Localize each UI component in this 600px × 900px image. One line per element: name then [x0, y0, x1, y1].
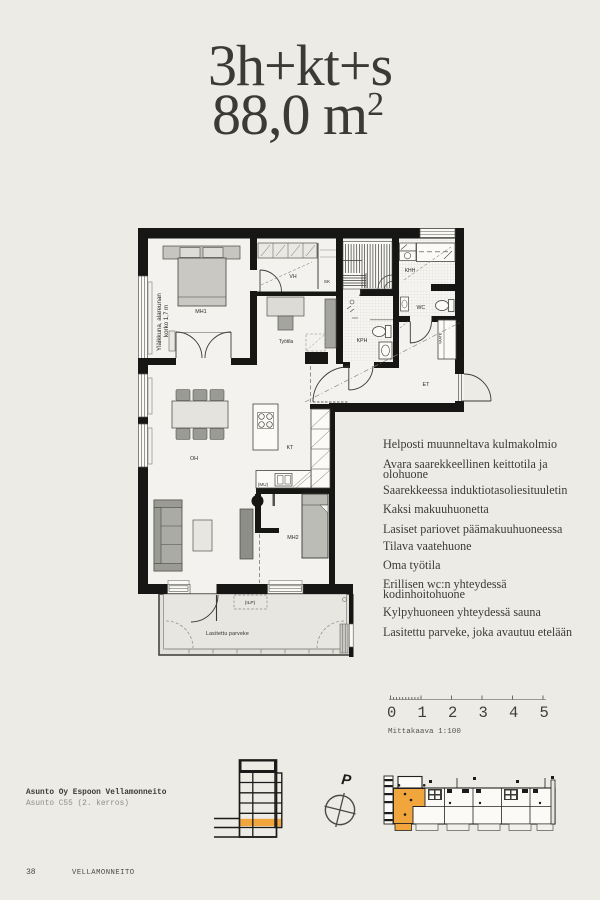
- svg-text:5: 5: [540, 704, 549, 722]
- svg-text:P: P: [341, 772, 353, 789]
- svg-text:kodinhoitohuone: kodinhoitohuone: [383, 587, 465, 601]
- svg-text:KT: KT: [287, 445, 294, 451]
- svg-text:3: 3: [479, 704, 488, 722]
- svg-text:38: 38: [26, 868, 36, 877]
- svg-text:Yläikkuna, alareunan: Yläikkuna, alareunan: [156, 293, 163, 351]
- svg-text:88,0 m2: 88,0 m2: [212, 82, 383, 147]
- svg-text:1: 1: [418, 704, 427, 722]
- svg-text:OH: OH: [190, 456, 198, 462]
- svg-text:Kylpyhuoneen yhteydessä sauna: Kylpyhuoneen yhteydessä sauna: [383, 605, 541, 619]
- svg-text:0: 0: [387, 704, 396, 722]
- svg-text:Asunto Oy Espoon Vellamonneito: Asunto Oy Espoon Vellamonneito: [26, 789, 167, 797]
- svg-text:MH2: MH2: [287, 535, 298, 541]
- svg-text:olohuone: olohuone: [383, 467, 428, 481]
- svg-text:(MU): (MU): [258, 482, 269, 487]
- svg-text:Tilava vaatehuone: Tilava vaatehuone: [383, 539, 472, 553]
- svg-text:Helposti muunneltava kulmakolm: Helposti muunneltava kulmakolmio: [383, 437, 557, 451]
- svg-text:Asunto C55 (2. kerros): Asunto C55 (2. kerros): [26, 800, 129, 808]
- svg-text:KPH: KPH: [357, 338, 368, 344]
- svg-text:VAATE: VAATE: [439, 332, 443, 344]
- svg-text:Mittakaava 1:100: Mittakaava 1:100: [388, 728, 461, 736]
- svg-text:Lasitettu parveke: Lasitettu parveke: [206, 631, 249, 637]
- svg-text:Lasiset pariovet päämakuuhuone: Lasiset pariovet päämakuuhuoneessa: [383, 522, 563, 536]
- svg-text:Saarekkeessa induktiotasoliesi: Saarekkeessa induktiotasoliesituuletin: [383, 483, 567, 497]
- svg-text:VELLAMONNEITO: VELLAMONNEITO: [72, 869, 135, 877]
- svg-text:WC: WC: [417, 305, 426, 311]
- svg-text:Oma työtila: Oma työtila: [383, 558, 441, 572]
- svg-text:2: 2: [448, 704, 457, 722]
- svg-text:4: 4: [509, 704, 518, 722]
- svg-text:ET: ET: [423, 382, 431, 388]
- svg-text:SK: SK: [324, 279, 331, 284]
- svg-text:MH1: MH1: [195, 309, 206, 315]
- svg-text:Lasitettu parveke, joka avautu: Lasitettu parveke, joka avautuu etelään: [383, 625, 572, 639]
- svg-text:Kaksi makuuhuonetta: Kaksi makuuhuonetta: [383, 502, 489, 516]
- svg-text:(ILP): (ILP): [245, 600, 256, 606]
- svg-text:VH: VH: [289, 274, 296, 280]
- svg-text:Työtila: Työtila: [279, 339, 294, 345]
